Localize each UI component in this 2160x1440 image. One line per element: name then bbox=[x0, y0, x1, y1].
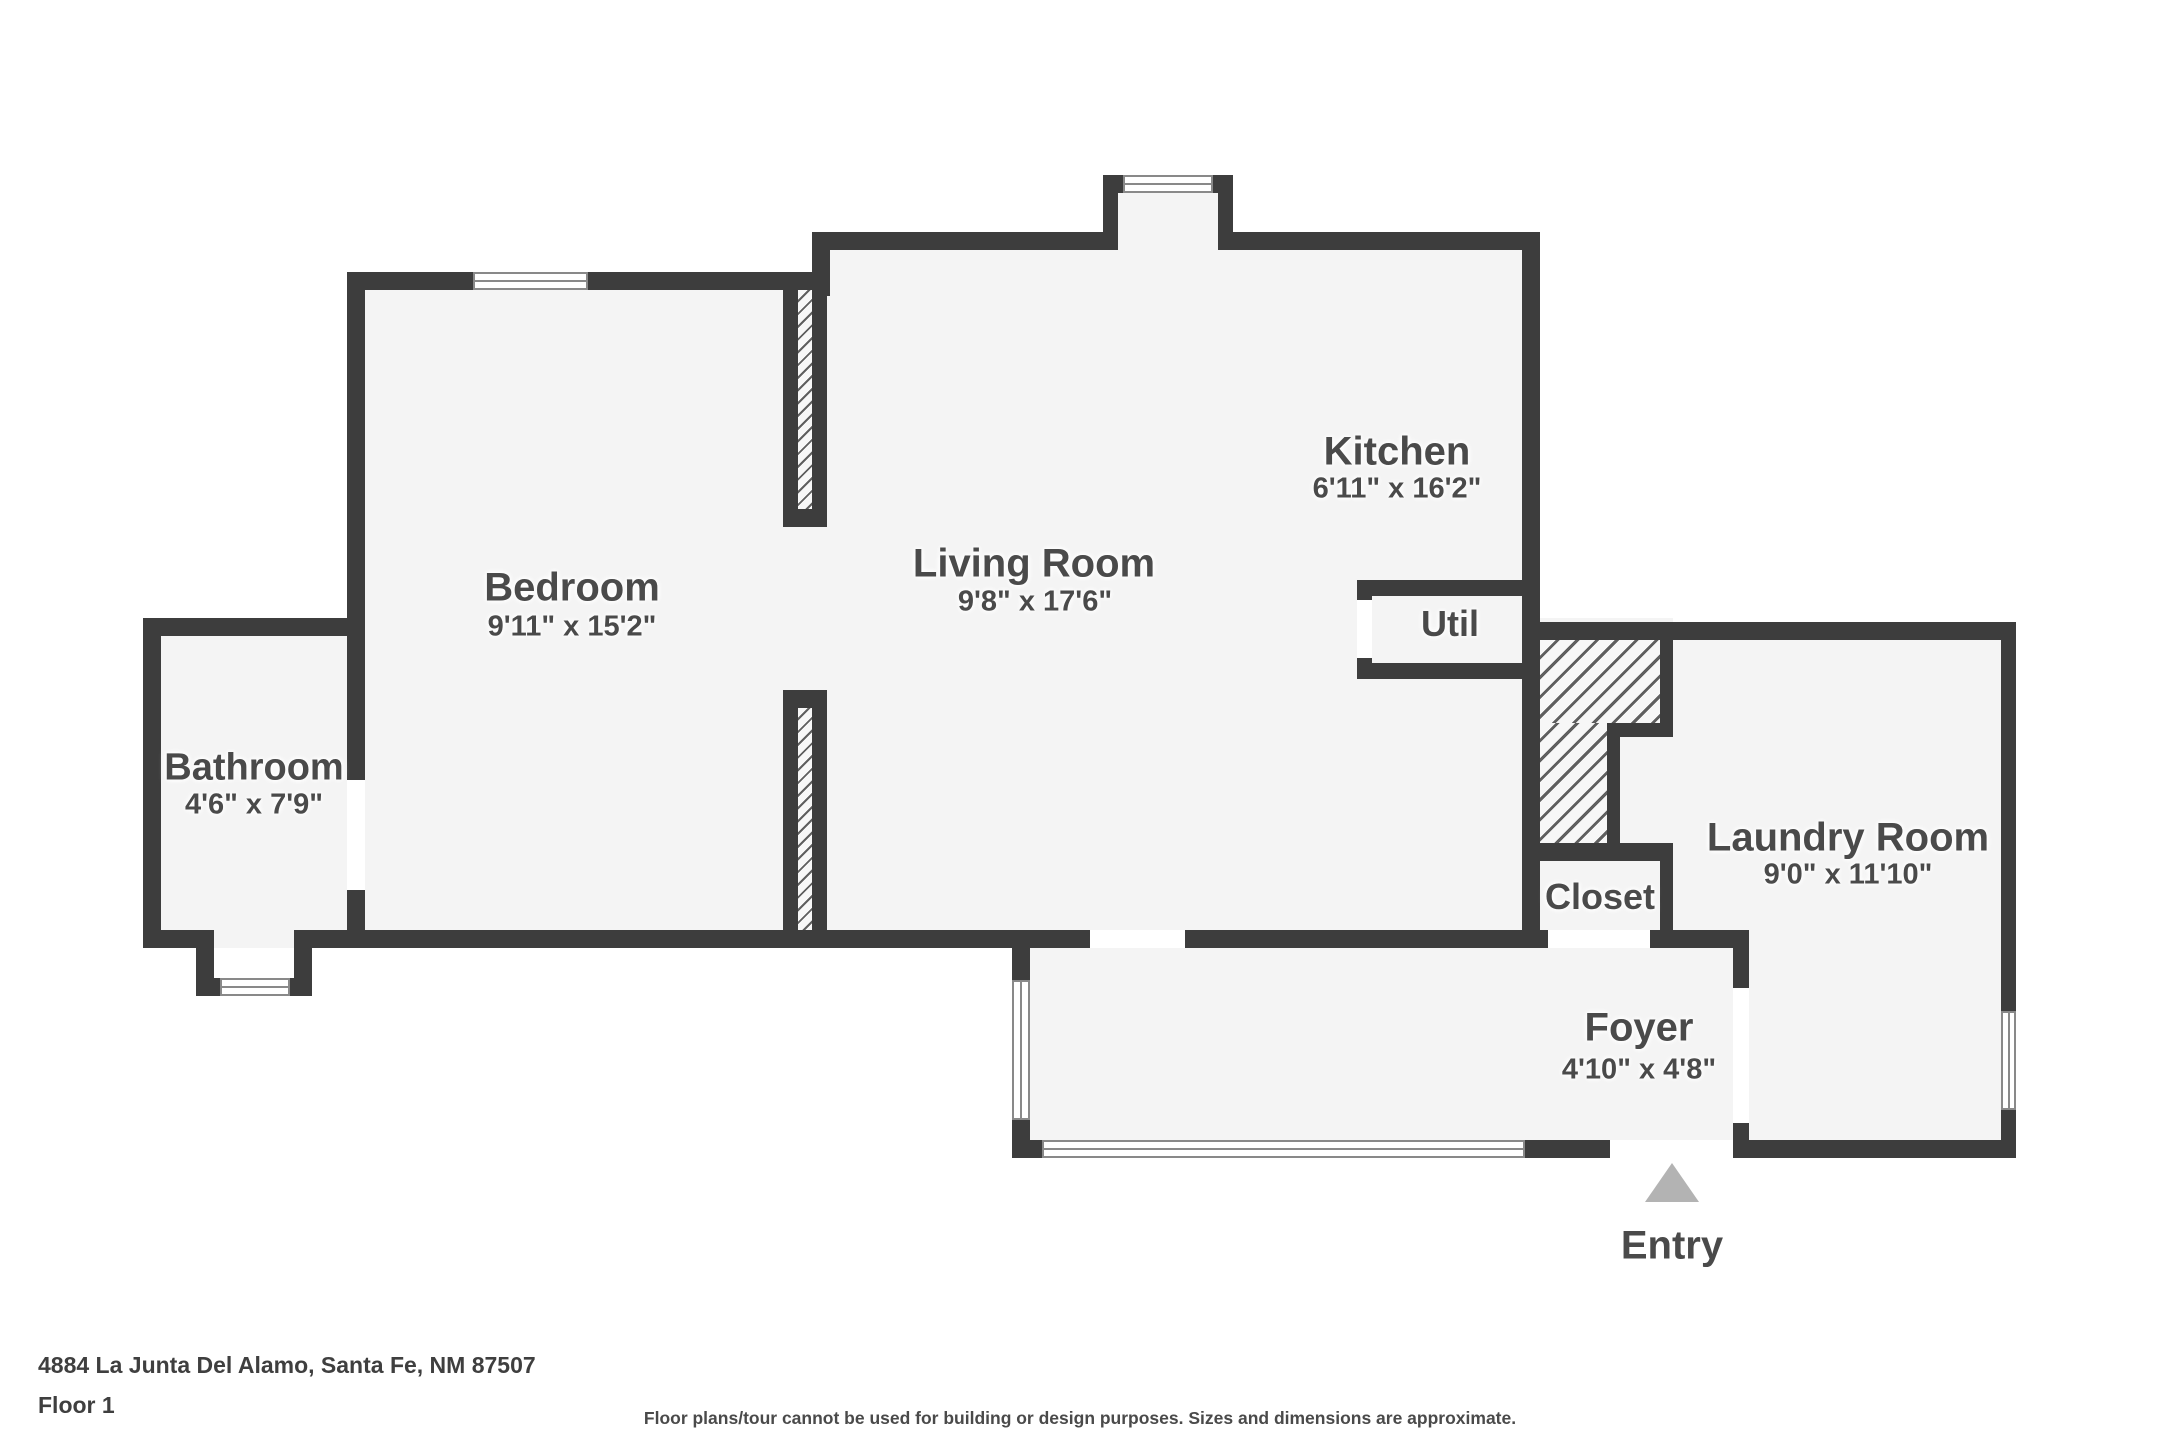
wall-util-top bbox=[1357, 580, 1540, 596]
room-label-bedroom: Bedroom bbox=[484, 566, 660, 611]
room-label-kitchen: Kitchen bbox=[1324, 430, 1471, 475]
window-bumpout-top bbox=[1123, 175, 1213, 193]
window-foyer-left bbox=[1012, 980, 1030, 1120]
window-bathroom-bump bbox=[220, 978, 290, 996]
wall-bathroom-left bbox=[143, 618, 161, 948]
wall-util-bottom bbox=[1357, 663, 1540, 679]
room-dims-foyer: 4'10" x 4'8" bbox=[1562, 1054, 1716, 1087]
room-label-util: Util bbox=[1421, 603, 1479, 645]
room-dims-kitchen: 6'11" x 16'2" bbox=[1313, 473, 1482, 506]
window-laundry-right bbox=[2001, 1011, 2016, 1110]
hatched-wall-divider-lower bbox=[783, 690, 827, 948]
floorplan-canvas: Bedroom 9'11" x 15'2" Living Room 9'8" x… bbox=[0, 0, 2160, 1440]
wall-closet-top bbox=[1522, 843, 1673, 861]
room-label-foyer: Foyer bbox=[1585, 1006, 1694, 1051]
room-label-closet: Closet bbox=[1545, 876, 1655, 918]
wall-closet-right bbox=[1660, 861, 1673, 930]
room-label-laundry: Laundry Room bbox=[1707, 816, 1989, 861]
room-dims-living: 9'8" x 17'6" bbox=[958, 586, 1112, 619]
wall-stairs-right-lower bbox=[1607, 737, 1620, 843]
door-opening-closet bbox=[1548, 930, 1650, 948]
door-opening-living-foyer bbox=[1090, 930, 1185, 948]
address-text: 4884 La Junta Del Alamo, Santa Fe, NM 87… bbox=[38, 1352, 536, 1379]
stairs-hatch-lower bbox=[1540, 723, 1607, 843]
door-opening-util bbox=[1357, 600, 1372, 658]
wall-stairs-step bbox=[1607, 723, 1673, 737]
door-opening-foyer-laundry bbox=[1733, 988, 1749, 1123]
room-dims-laundry: 9'0" x 11'10" bbox=[1764, 859, 1933, 892]
window-foyer-bottom bbox=[1042, 1140, 1525, 1158]
hatched-wall-divider-upper bbox=[783, 272, 827, 527]
wall-bathroom-top bbox=[143, 618, 365, 636]
room-dims-bathroom: 4'6" x 7'9" bbox=[185, 789, 323, 822]
disclaimer-text: Floor plans/tour cannot be used for buil… bbox=[0, 1408, 2160, 1429]
door-opening-entry bbox=[1610, 1140, 1733, 1158]
room-label-bathroom: Bathroom bbox=[164, 747, 343, 790]
wall-stairs-top bbox=[1540, 622, 1673, 640]
entry-label: Entry bbox=[1621, 1224, 1723, 1269]
passage-bathroom-bump bbox=[214, 930, 294, 948]
wall-bottom-band bbox=[143, 930, 1749, 948]
room-dims-bedroom: 9'11" x 15'2" bbox=[488, 611, 657, 644]
stairs-hatch-upper bbox=[1540, 640, 1660, 723]
wall-laundry-top bbox=[1660, 622, 2016, 640]
door-opening-bathroom bbox=[347, 780, 365, 890]
window-bedroom-top bbox=[473, 272, 588, 290]
wall-living-top-right bbox=[1218, 232, 1540, 250]
room-label-living: Living Room bbox=[913, 542, 1155, 587]
entry-arrow-icon bbox=[1645, 1163, 1699, 1202]
wall-jog bbox=[812, 232, 830, 296]
wall-living-top-left bbox=[812, 232, 1118, 250]
